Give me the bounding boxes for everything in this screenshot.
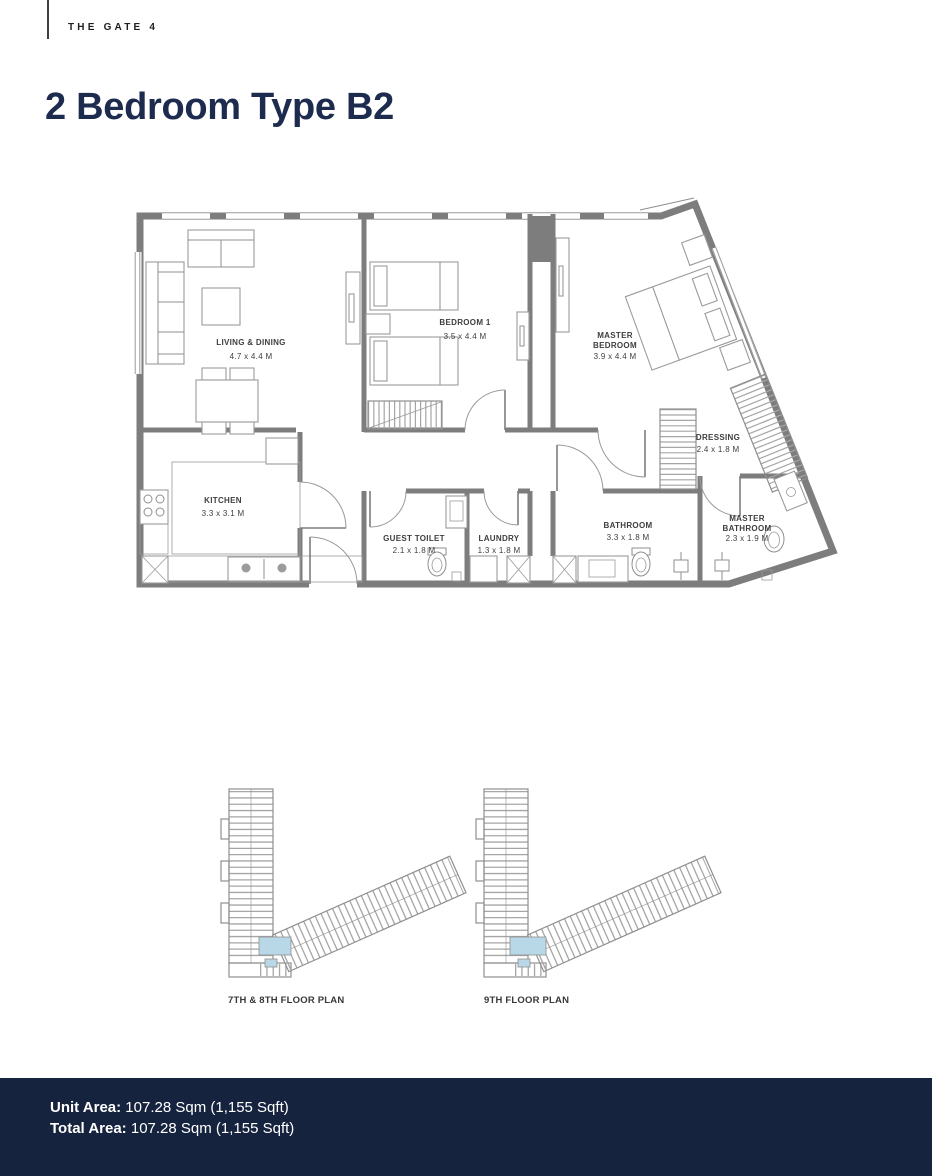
room-label-kitchen: KITCHEN: [204, 496, 242, 505]
room-label-master-bedroom-1: MASTER: [597, 331, 633, 340]
room-dims-living-dining: 4.7 x 4.4 M: [230, 352, 273, 361]
dining-table: [196, 368, 258, 434]
room-label-laundry: LAUNDRY: [479, 534, 520, 543]
tv-unit-bedroom1: [517, 312, 529, 360]
unit-area-line: Unit Area: 107.28 Sqm (1,155 Sqft): [50, 1097, 932, 1118]
loveseat: [188, 230, 254, 267]
room-label-guest-toilet: GUEST TOILET: [383, 534, 445, 543]
unit-area-value: 107.28 Sqm (1,155 Sqft): [125, 1099, 288, 1116]
room-dims-master-bathroom: 2.3 x 1.9 M: [726, 534, 769, 543]
highlighted-unit: [510, 937, 546, 955]
coffee-table: [202, 288, 240, 325]
bathroom-fixtures: [578, 548, 688, 582]
key-plan-label-9th: 9TH FLOOR PLAN: [484, 995, 569, 1006]
tv-unit-master: [556, 238, 569, 332]
kitchen-fittings: [140, 438, 362, 582]
key-plan-7th-8th: [221, 789, 466, 977]
washer: [470, 556, 497, 582]
sofa: [146, 262, 184, 364]
room-label-master-bathroom-1: MASTER: [729, 514, 765, 523]
footer-area-bar: Unit Area: 107.28 Sqm (1,155 Sqft) Total…: [0, 1078, 932, 1176]
window-band-top: [162, 211, 648, 221]
room-dims-dressing: 2.4 x 1.8 M: [697, 445, 740, 454]
wardrobe-bedroom1: [368, 401, 442, 429]
fridge: [266, 438, 298, 464]
bed-single-1: [370, 262, 458, 310]
total-area-line: Total Area: 107.28 Sqm (1,155 Sqft): [50, 1118, 932, 1139]
key-plan-9th: [476, 789, 721, 977]
room-dims-bathroom: 3.3 x 1.8 M: [607, 533, 650, 542]
total-area-value: 107.28 Sqm (1,155 Sqft): [131, 1120, 294, 1137]
entrance-opening: [309, 577, 357, 591]
room-label-bedroom1: BEDROOM 1: [439, 318, 490, 327]
room-dims-kitchen: 3.3 x 3.1 M: [202, 509, 245, 518]
room-label-dressing: DRESSING: [696, 433, 740, 442]
key-plan-label-7th-8th: 7TH & 8TH FLOOR PLAN: [228, 995, 344, 1006]
unit-floor-plan: LIVING & DINING 4.7 x 4.4 M BEDROOM 1 3.…: [134, 198, 834, 591]
wardrobe-dressing-1: [660, 409, 696, 489]
highlighted-unit: [259, 937, 291, 955]
kitchen-sink: [228, 557, 300, 581]
room-label-living-dining: LIVING & DINING: [216, 338, 285, 347]
shaft-1: [142, 556, 168, 583]
room-label-bathroom: BATHROOM: [604, 521, 653, 530]
room-dims-master-bedroom: 3.9 x 4.4 M: [594, 352, 637, 361]
window-band-left: [134, 252, 142, 374]
total-area-label: Total Area:: [50, 1120, 127, 1137]
bed-single-2: [370, 337, 458, 385]
bed-master: [625, 266, 736, 370]
room-dims-guest-toilet: 2.1 x 1.8 M: [393, 546, 436, 555]
floor-plan-figure: LIVING & DINING 4.7 x 4.4 M BEDROOM 1 3.…: [0, 0, 932, 1176]
room-label-master-bathroom-2: BATHROOM: [723, 524, 772, 533]
room-dims-laundry: 1.3 x 1.8 M: [478, 546, 521, 555]
room-label-master-bedroom-2: BEDROOM: [593, 341, 637, 350]
unit-area-label: Unit Area:: [50, 1099, 121, 1116]
tv-unit-living: [346, 272, 360, 344]
shaft-2: [507, 556, 530, 583]
brochure-page: THE GATE 4 2 Bedroom Type B2: [0, 0, 932, 1176]
shaft-3: [553, 556, 576, 583]
room-dims-bedroom1: 3.5 x 4.4 M: [444, 332, 487, 341]
nightstand-bedroom1: [366, 314, 390, 334]
